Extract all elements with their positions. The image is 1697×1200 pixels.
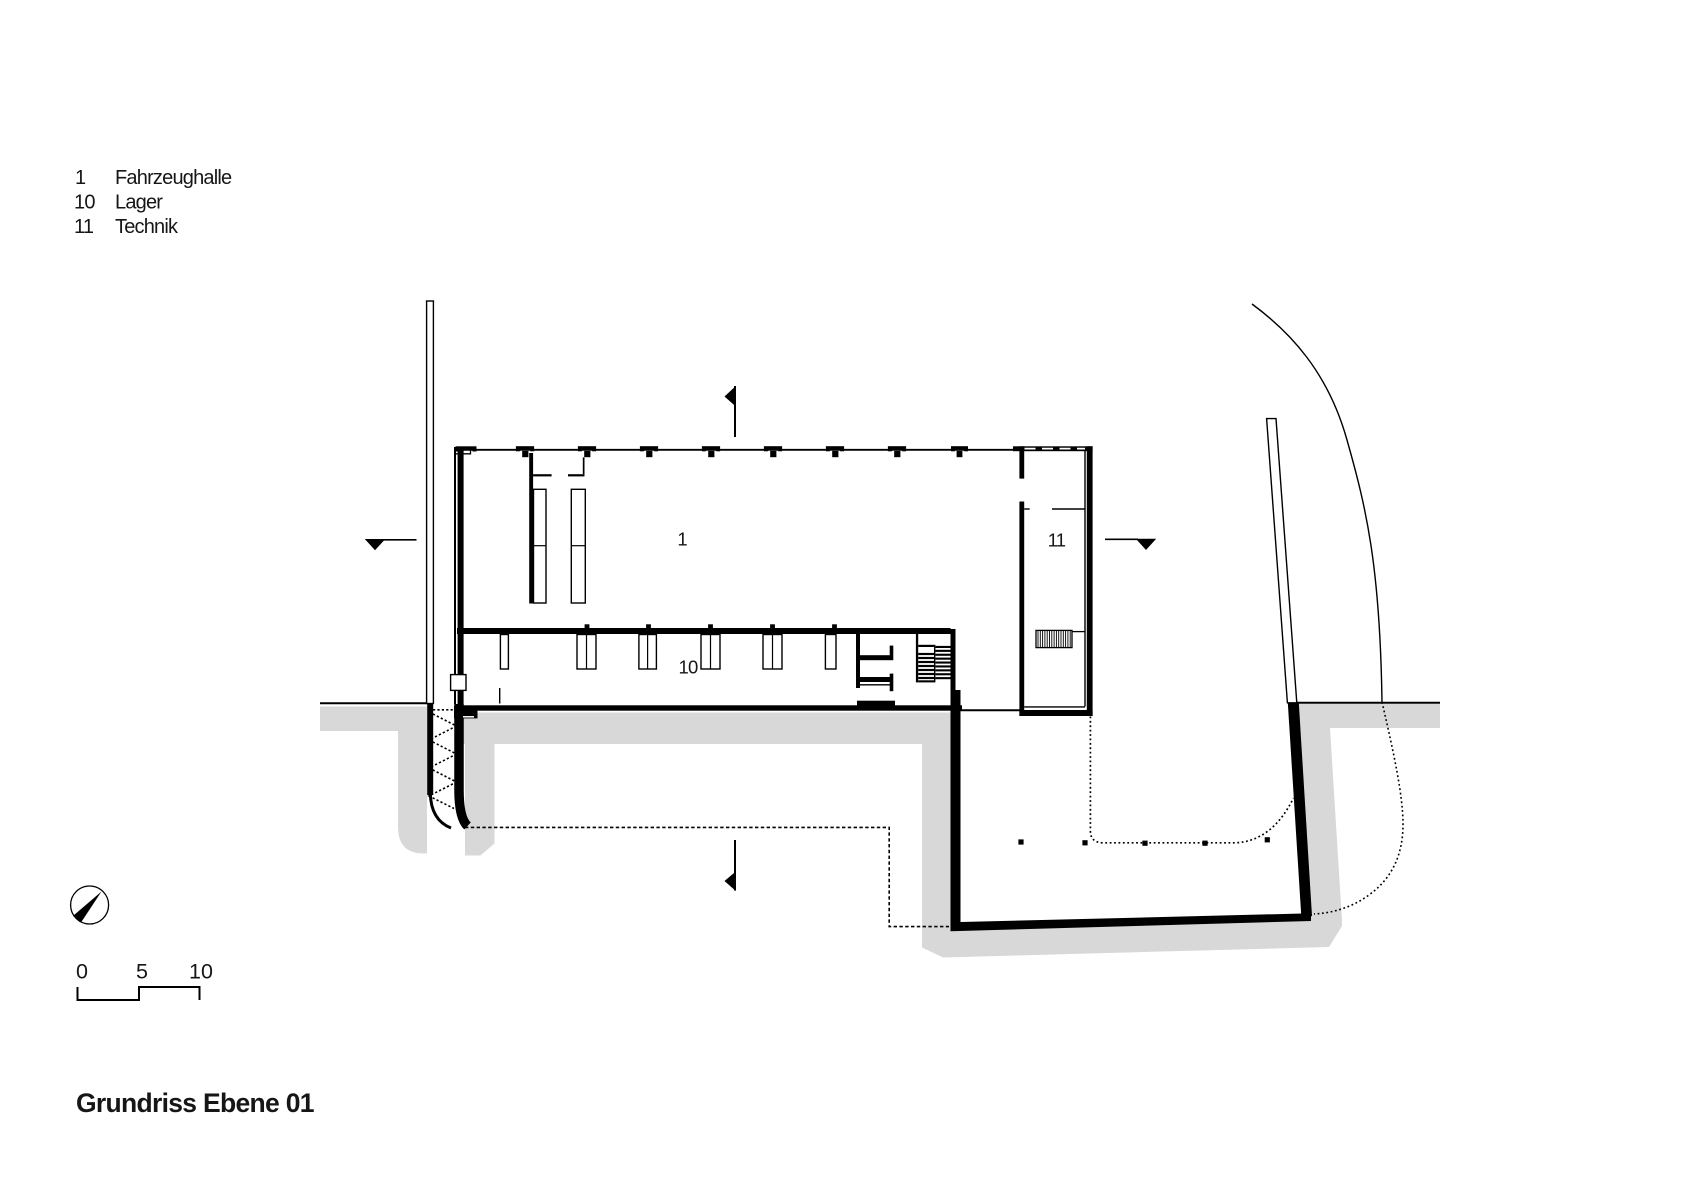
svg-text:Technik: Technik [115,216,179,238]
svg-text:1: 1 [75,167,86,189]
svg-text:11: 11 [1048,529,1066,550]
svg-text:Fahrzeughalle: Fahrzeughalle [115,167,232,189]
svg-text:0: 0 [76,960,88,984]
svg-text:10: 10 [74,192,95,214]
svg-text:11: 11 [74,216,94,238]
svg-text:10: 10 [679,656,698,677]
svg-text:5: 5 [136,960,148,984]
svg-text:Lager: Lager [115,192,163,214]
svg-text:10: 10 [189,960,213,984]
svg-text:1: 1 [677,528,687,549]
svg-text:Grundriss Ebene 01: Grundriss Ebene 01 [76,1088,314,1118]
